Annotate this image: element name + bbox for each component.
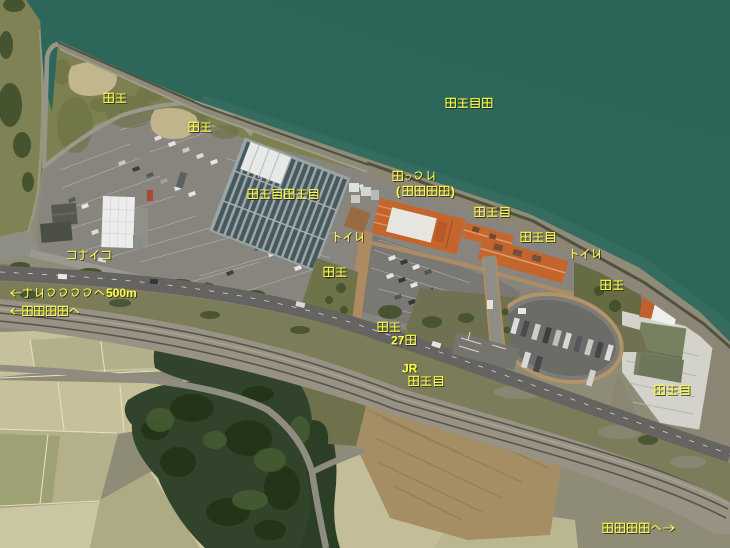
svg-text:(: ( (396, 184, 400, 198)
svg-text:): ) (451, 184, 455, 198)
svg-text:JR: JR (402, 362, 418, 376)
svg-text:500m: 500m (106, 286, 137, 300)
svg-text:27: 27 (391, 333, 405, 347)
